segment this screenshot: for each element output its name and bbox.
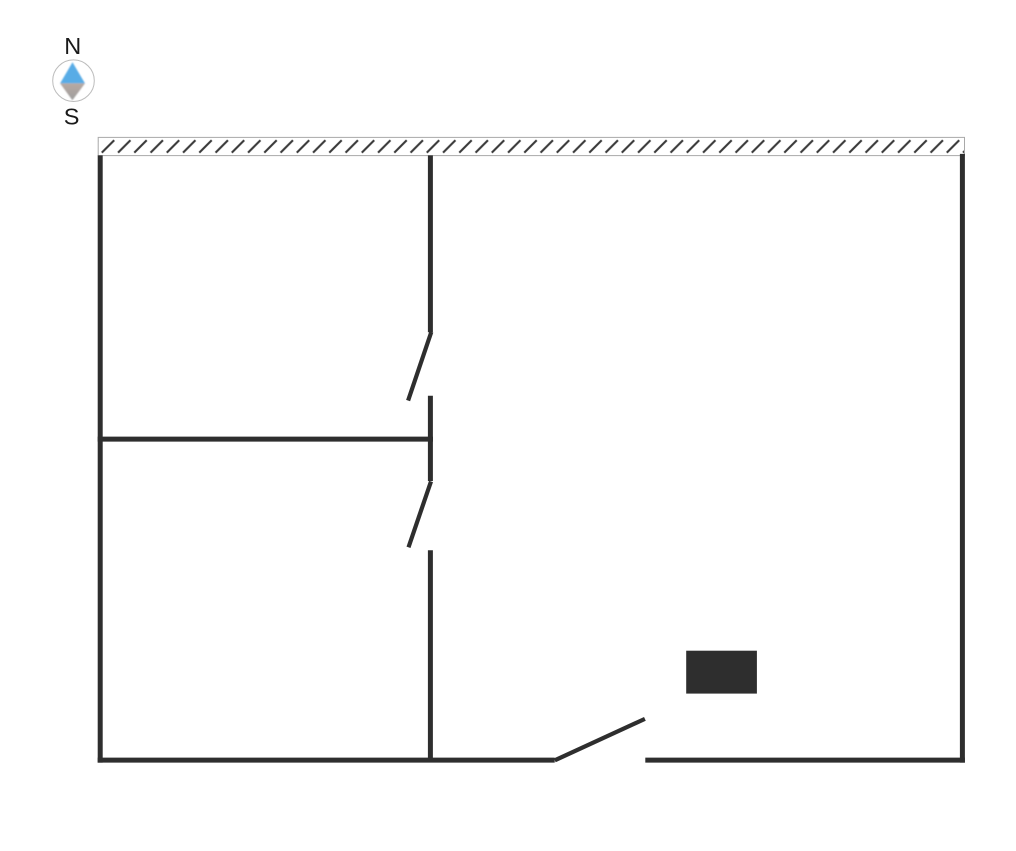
svg-text:S: S	[64, 104, 80, 130]
svg-text:N: N	[64, 33, 81, 59]
